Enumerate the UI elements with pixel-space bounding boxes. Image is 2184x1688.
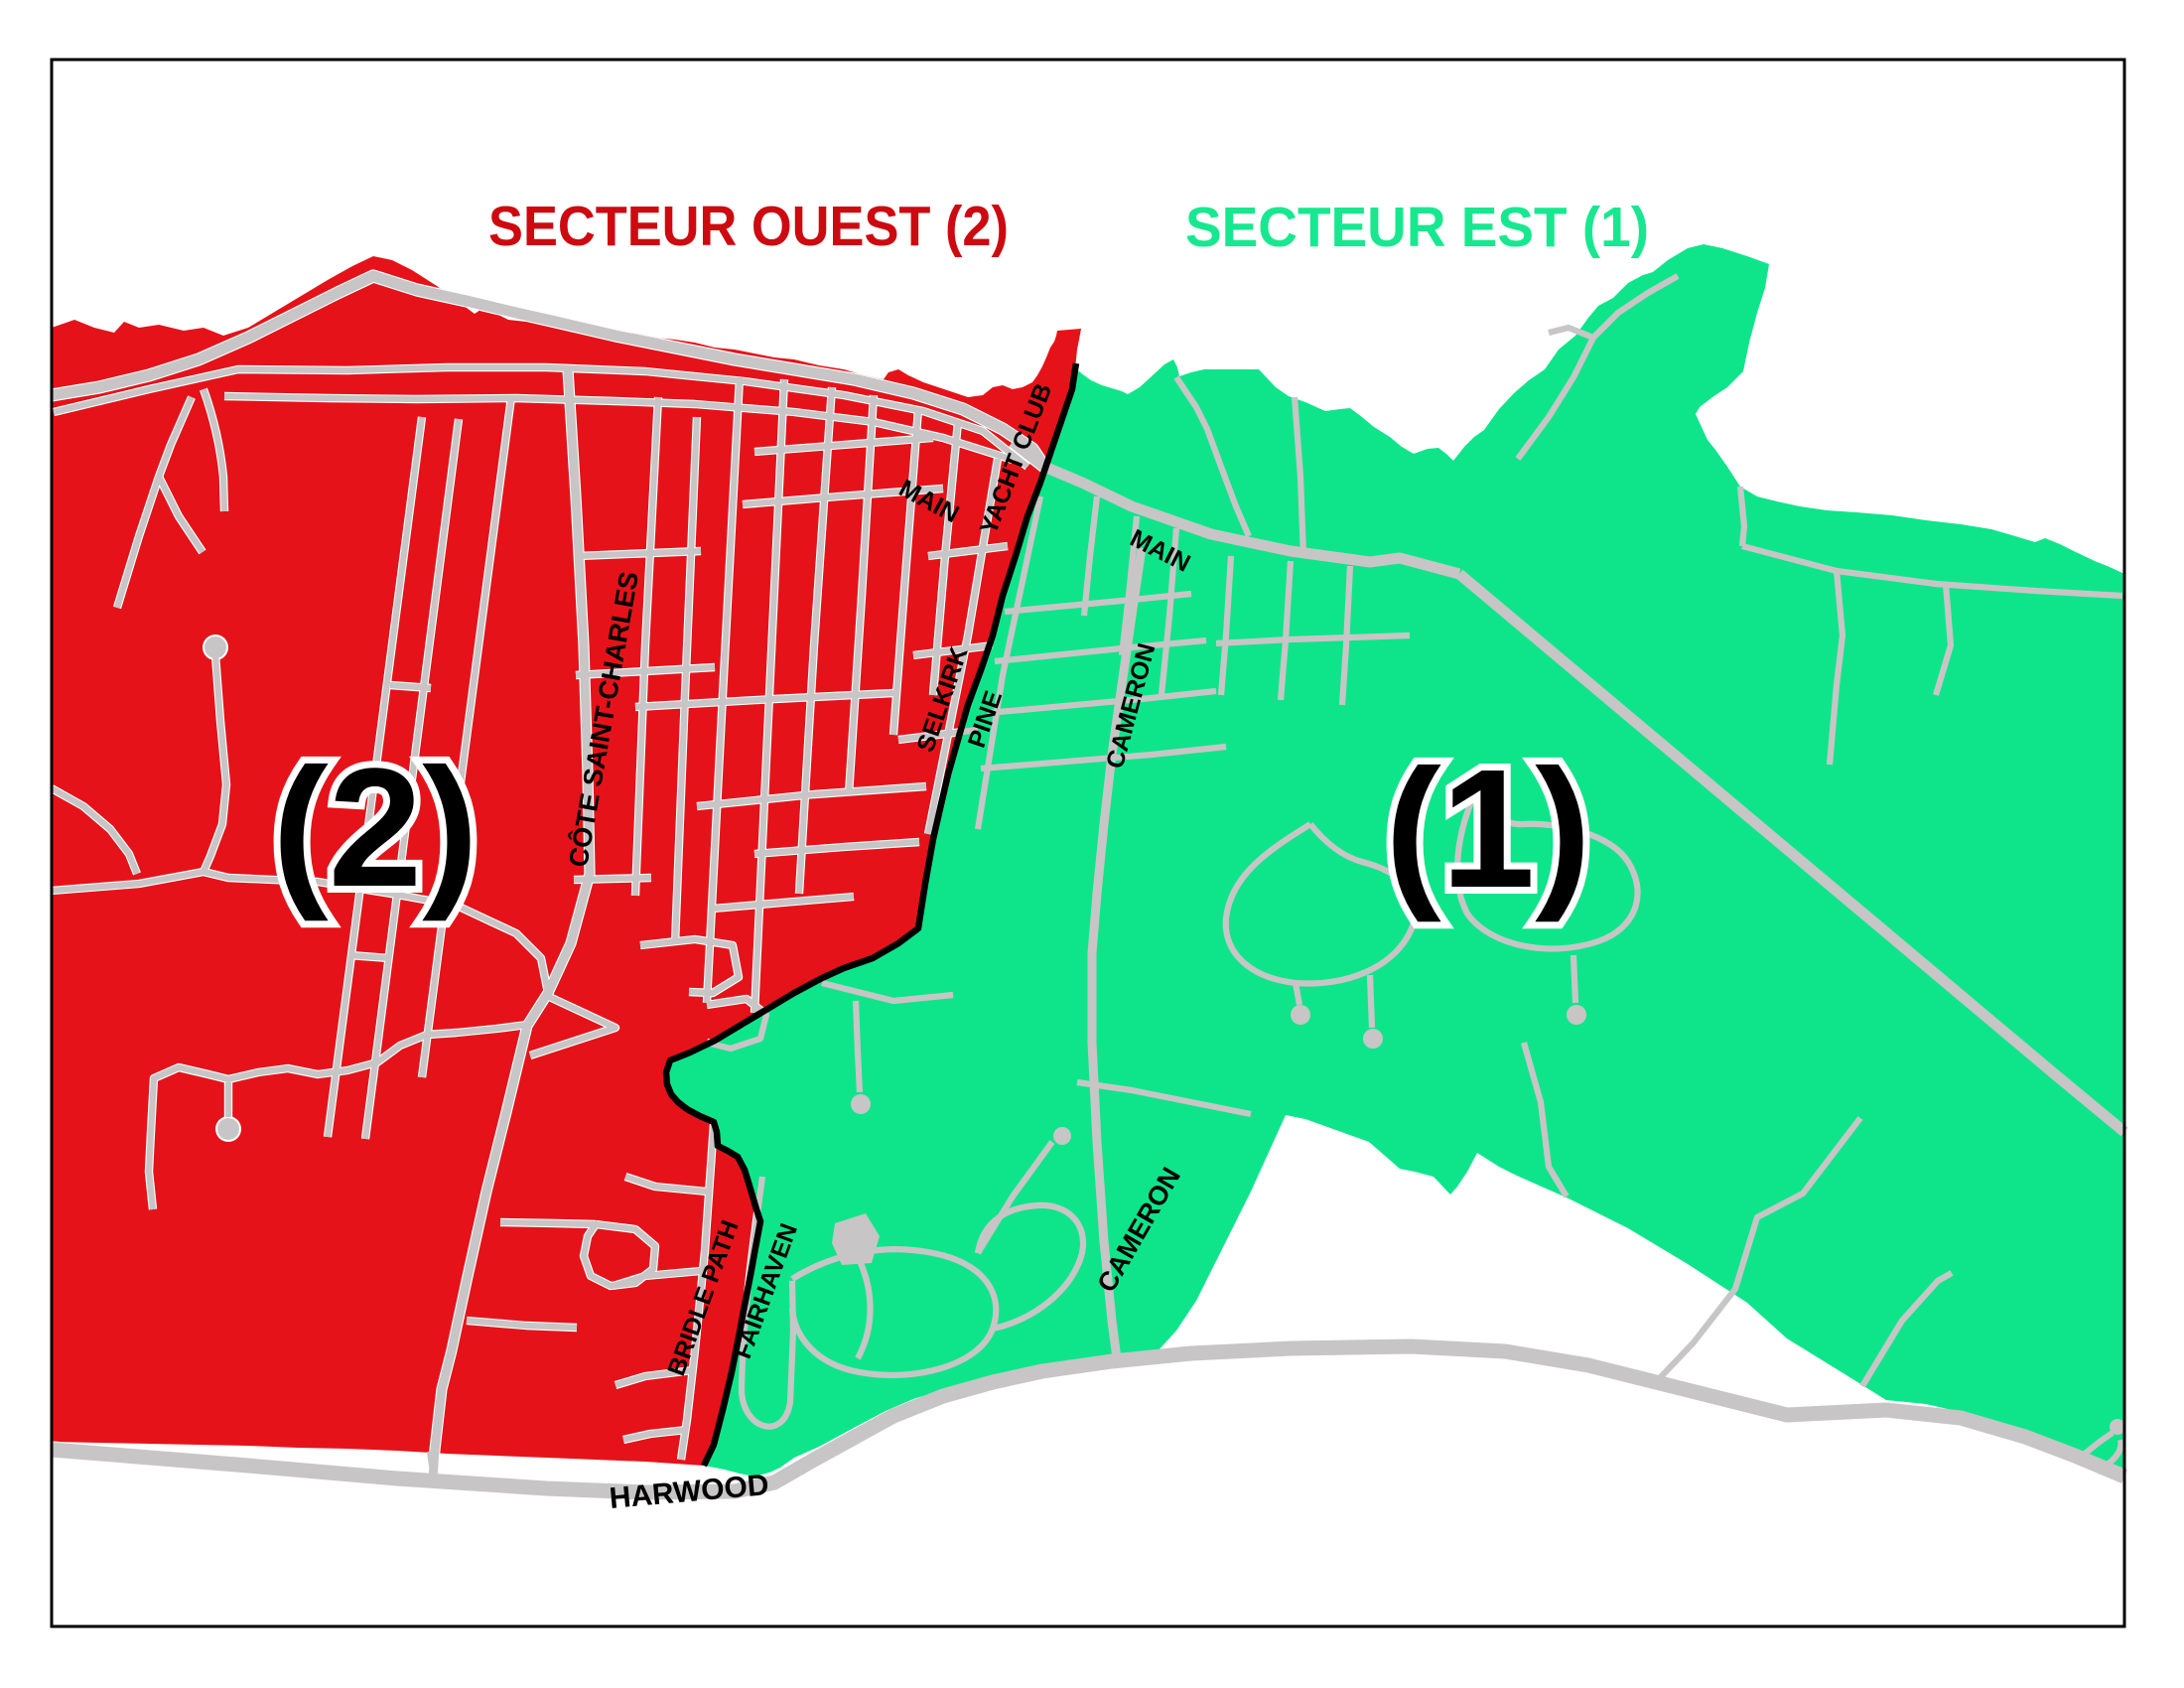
svg-text:SECTEUR OUEST (2): SECTEUR OUEST (2) xyxy=(488,195,1009,258)
svg-text:(1): (1) xyxy=(1385,735,1591,923)
svg-text:(2): (2) xyxy=(272,734,478,922)
svg-text:SECTEUR EST (1): SECTEUR EST (1) xyxy=(1185,196,1649,259)
